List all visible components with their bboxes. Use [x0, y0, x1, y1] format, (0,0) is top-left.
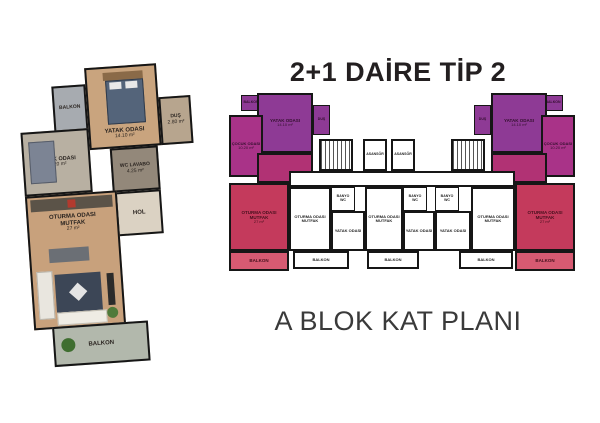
room-label-line2: MUTFAK [302, 219, 319, 223]
room-area: 27 m² [540, 220, 550, 224]
room-label-line2: WC [412, 199, 418, 203]
rug-diamond-graphic [69, 283, 87, 301]
unit-left-oturma-odasi-mutfak: OTURMA ODASI MUTFAK 27 m² [229, 183, 289, 251]
rug-graphic [54, 272, 103, 313]
room-label: YATAK ODASI [335, 229, 362, 233]
apartment-type-title: 2+1 DAİRE TİP 2 [284, 57, 512, 88]
block-floor-plan: BALKON YATAK ODASI 14.10 m² DUŞ ÇOCUK OD… [227, 87, 577, 287]
room-label: YATAK ODASI [406, 229, 433, 233]
room-label-line2: WC [444, 199, 450, 203]
unit-b-balkon: BALKON [367, 251, 419, 269]
detail-hol: HOL [115, 189, 164, 236]
stairs-left [319, 139, 353, 171]
room-label-line2: WC [340, 199, 346, 203]
room-label: BALKON [249, 258, 268, 263]
room-label: BALKON [384, 258, 401, 262]
room-label: BALKON [546, 101, 561, 105]
pillow-graphic [125, 81, 137, 89]
room-label: BALKON [535, 258, 554, 263]
plant-graphic [107, 307, 119, 319]
tv-graphic [106, 273, 115, 305]
unit-c-yatak: YATAK ODASI [435, 211, 471, 251]
room-area: 2.80 m² [167, 119, 184, 126]
apartment-detail-plan: BALKON YATAK ODASI 14.10 m² DUŞ 2.80 m² … [6, 49, 239, 369]
unit-a-balkon: BALKON [293, 251, 349, 269]
stove-graphic [67, 199, 76, 208]
block-plan-title: A BLOK KAT PLANI [272, 306, 524, 337]
room-label: BALKON [59, 105, 81, 112]
detail-wc-lavabo: WC LAVABO 4.25 m² [110, 145, 161, 192]
room-label: BALKON [312, 258, 329, 262]
elevator-1: ASANSÖR [363, 139, 387, 171]
room-label: DUŞ [479, 118, 486, 122]
unit-c-balkon: BALKON [459, 251, 513, 269]
unit-a-oturma: OTURMA ODASI MUTFAK [289, 187, 331, 251]
unit-c-oturma: OTURMA ODASI MUTFAK [471, 187, 515, 251]
room-label: BALKON [477, 258, 494, 262]
room-area: 27 m² [254, 220, 264, 224]
unit-left-balkon: BALKON [229, 251, 289, 271]
room-area: 14.10 m² [511, 123, 527, 127]
room-label-line2: MUTFAK [376, 219, 393, 223]
unit-right-balkon: BALKON [515, 251, 575, 271]
elevator-2: ASANSÖR [391, 139, 415, 171]
detail-yatak-odasi: YATAK ODASI 14.10 m² [84, 63, 162, 150]
unit-b-yatak: YATAK ODASI [403, 211, 435, 251]
unit-left-dus: DUŞ [313, 105, 330, 135]
room-label-group: OTURMA ODASI MUTFAK 27 m² [49, 212, 97, 234]
floor-plan-sheet: 2+1 DAİRE TİP 2 A BLOK KAT PLANI BALKON … [0, 0, 600, 423]
room-label-line2: MUTFAK [485, 219, 502, 223]
plant-graphic [61, 338, 76, 353]
room-label: HOL [133, 209, 146, 217]
detail-balkon-top: BALKON [51, 84, 88, 132]
room-area: 4.25 m² [127, 168, 144, 175]
pillow-graphic [109, 82, 121, 90]
unit-right-oturma-odasi-mutfak: OTURMA ODASI MUTFAK 27 m² [515, 183, 575, 251]
room-area: 14.10 m² [115, 133, 135, 140]
room-label: DUŞ [318, 118, 325, 122]
room-area: 10.20 m² [238, 146, 254, 150]
unit-b-oturma: OTURMA ODASI MUTFAK [365, 187, 403, 251]
stairs-right [451, 139, 485, 171]
detail-balkon-bottom: BALKON [52, 320, 151, 367]
unit-left-yatak-odasi: YATAK ODASI 14.10 m² [257, 93, 313, 153]
unit-a-banyo-wc: BANYO WC [331, 187, 355, 211]
corridor [289, 171, 515, 187]
room-label: BALKON [88, 340, 114, 348]
detail-dus: DUŞ 2.80 m² [158, 95, 193, 145]
unit-b-banyo-wc: BANYO WC [403, 187, 427, 211]
room-label: YATAK ODASI [440, 229, 467, 233]
detail-oturma-odasi-mutfak: OTURMA ODASI MUTFAK 27 m² [25, 190, 126, 330]
room-label: ASANSÖR [366, 153, 384, 157]
dining-table-graphic [49, 246, 90, 263]
unit-a-yatak: YATAK ODASI [331, 211, 365, 251]
detail-cocuk-odasi: ÇOCUK ODASI 10.20 m² [20, 128, 92, 197]
unit-right-yatak-odasi: YATAK ODASI 14.10 m² [491, 93, 547, 153]
unit-right-dus: DUŞ [474, 105, 491, 135]
room-area: 14.10 m² [277, 123, 293, 127]
room-label: ASANSÖR [394, 153, 412, 157]
unit-c-banyo-wc: BANYO WC [435, 187, 459, 211]
room-area: 10.20 m² [550, 146, 566, 150]
sofa-graphic [36, 271, 55, 320]
child-bed-graphic [28, 141, 57, 185]
